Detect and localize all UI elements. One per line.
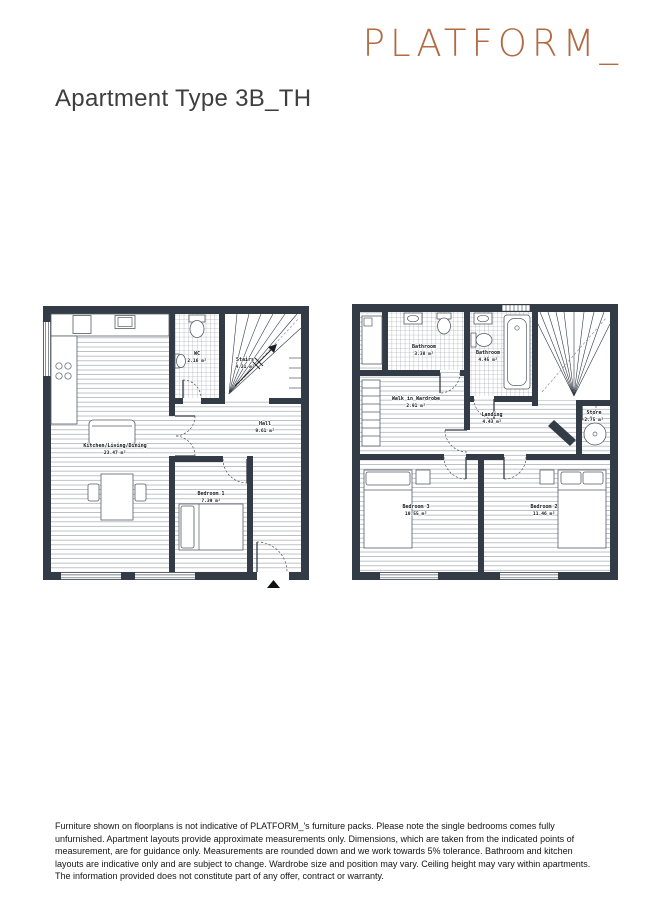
room-area: 2.16 m²	[187, 358, 207, 364]
room-label: Hall	[259, 421, 271, 427]
room-label: WC	[194, 351, 200, 357]
cupboard	[362, 316, 382, 364]
room-label: Bedroom 2	[530, 504, 557, 510]
page-title: Apartment Type 3B_TH	[55, 85, 311, 113]
floorplan-ground-floor: Kitchen/Living/Dining 23.47 m² WC 2.16 m…	[43, 306, 309, 588]
room-label: Bedroom 1	[197, 491, 224, 497]
floorplan-first-floor: Bathroom 3.38 m² Bathroom 4.45 m² Walk i…	[352, 304, 618, 588]
room-label: Walk in Wardrobe	[392, 396, 440, 402]
disclaimer-text: Furniture shown on floorplans is not ind…	[55, 820, 602, 883]
room-area: 7.39 m²	[201, 498, 221, 504]
bed-single	[179, 504, 243, 550]
room-area: 4.45 m²	[478, 357, 498, 363]
brand-logo: PLATFORM_	[363, 22, 623, 65]
entrance-marker	[267, 580, 280, 588]
room-label: Bedroom 3	[402, 504, 429, 510]
room-label: Landing	[481, 412, 502, 418]
room-area: 23.47 m²	[104, 450, 126, 456]
room-area: 2.91 m²	[406, 403, 426, 409]
room-area: 4.21 m²	[235, 364, 255, 370]
bathtub	[504, 315, 530, 389]
room-label: Stairs	[236, 357, 254, 363]
roof-window-marker	[502, 305, 530, 311]
room-area: 10.55 m²	[405, 511, 427, 517]
room-area: 11.46 m²	[533, 511, 555, 517]
room-area: 9.61 m²	[255, 428, 275, 434]
room-label: Bathroom	[412, 344, 436, 350]
room-area: 3.38 m²	[414, 351, 434, 357]
room-area: 4.43 m²	[482, 419, 502, 425]
wardrobe-shelving	[362, 380, 380, 446]
room-label: Bathroom	[476, 350, 500, 356]
store-tank	[584, 423, 606, 445]
room-label: Kitchen/Living/Dining	[83, 443, 146, 449]
room-label: Store	[586, 410, 601, 416]
room-area: 2.75 m²	[584, 417, 604, 423]
